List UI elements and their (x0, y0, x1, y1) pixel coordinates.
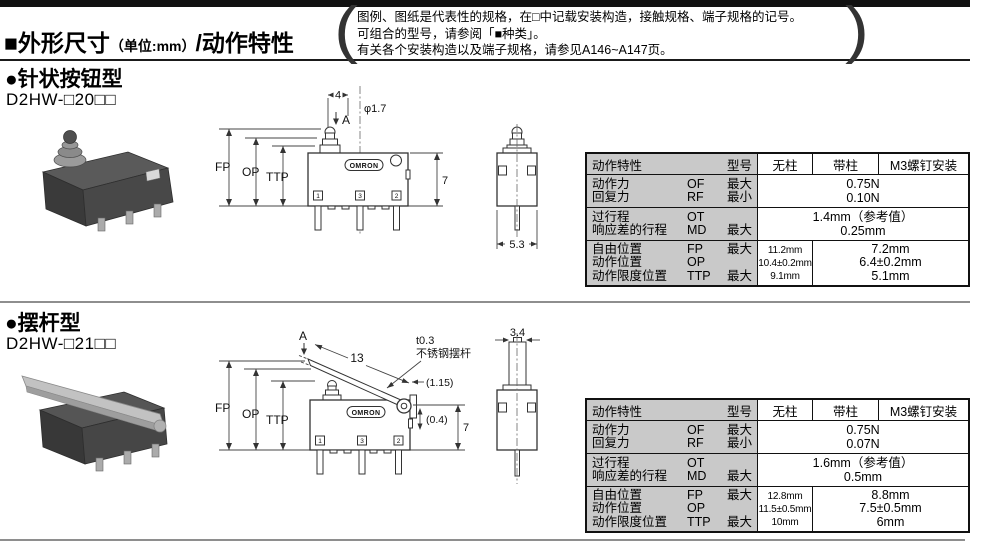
terminal-3-label: 3 (358, 193, 362, 200)
terminal-1-label: 1 (318, 438, 322, 445)
product-photo-hinge-lever (12, 344, 192, 474)
terminal-2-label: 2 (395, 193, 399, 200)
brand-logo-text: OMRON (352, 410, 381, 417)
column-header-m3-screw: M3螺钉安装 (878, 154, 968, 174)
section-divider (0, 301, 970, 303)
column-header-m3-screw: M3螺钉安装 (878, 400, 968, 420)
column-header-no-post: 无柱 (757, 400, 812, 420)
row-label-cell: 自由位置FP最大 动作位置OP 动作限度位置TTP最大 (587, 487, 757, 531)
ttp-label: TTP (266, 170, 289, 184)
terminal-1-label: 1 (316, 193, 320, 200)
table-row-force: 动作力OF最大 回复力RF最小 0.75N 0.07N (587, 420, 968, 453)
lever-length-dimension: 13 (315, 345, 409, 384)
corner-left-label: 动作特性 (592, 155, 642, 174)
page-title: ■外形尺寸（单位:mm）/动作特性 (4, 24, 294, 58)
table-corner-cell: 动作特性 型号 (587, 154, 757, 174)
corner-left-label: 动作特性 (592, 401, 642, 420)
table-row-positions: 自由位置FP最大 动作位置OP 动作限度位置TTP最大 11.2mm 10.4±… (587, 240, 968, 285)
page-title-main: ■外形尺寸 (4, 30, 110, 56)
lever-thickness-label: t0.3 (416, 335, 434, 347)
offset-dimension-2: (0.4) (418, 408, 448, 430)
note-line-2: 可组合的型号，请参阅「■种类」。 (357, 26, 849, 43)
dim-side-width-label: 3.4 (510, 328, 525, 339)
note-line-1: 图例、图纸是代表性的规格，在□中记载安装构造，接触规格、端子规格的记号。 (357, 9, 849, 26)
a-label: A (342, 113, 350, 127)
bottom-rule (0, 539, 965, 541)
row-values-cell: 1.6mm（参考值） 0.5mm (757, 454, 968, 486)
top-black-bar (0, 0, 970, 7)
row-values-cell: 0.75N 0.07N (757, 421, 968, 453)
ttp-label: TTP (266, 413, 289, 427)
a-label: A (299, 329, 307, 343)
dim-13-label: 13 (350, 351, 364, 365)
section-heading-pin-plunger: ●针状按钮型 (5, 63, 123, 93)
front-view-drawing: OMRON 1 3 2 (310, 381, 413, 475)
spec-table-hinge-lever: 动作特性 型号 无柱 带柱 M3螺钉安装 动作力OF最大 回复力RF最小 0.7… (585, 398, 970, 533)
lever-material-label: 不锈钢摆杆 (416, 346, 471, 360)
op-label: OP (242, 407, 259, 421)
spec-table-pin-plunger: 动作特性 型号 无柱 带柱 M3螺钉安装 动作力OF最大 回复力RF最小 0.7… (585, 152, 970, 287)
note-open-paren: ( (334, 0, 358, 61)
height-dimension: 7 (410, 153, 448, 206)
plunger-photo (54, 131, 86, 168)
row-values-post-m3: 8.8mm 7.5±0.5mm 6mm (812, 487, 968, 531)
fp-label: FP (215, 160, 230, 174)
dim-diameter-label: φ1.7 (364, 103, 386, 115)
row-label-cell: 动作力OF最大 回复力RF最小 (587, 175, 757, 207)
page-title-suffix: /动作特性 (195, 30, 293, 56)
table-row-travel: 过行程OT 响应差的行程MD最大 1.6mm（参考值） 0.5mm (587, 453, 968, 486)
row-values-cell: 0.75N 0.10N (757, 175, 968, 207)
table-row-force: 动作力OF最大 回复力RF最小 0.75N 0.10N (587, 174, 968, 207)
arrow-a-marker: A (333, 112, 350, 127)
front-view-drawing: OMRON 1 3 2 (308, 127, 410, 230)
table-row-travel: 过行程OT 响应差的行程MD最大 1.4mm（参考值） 0.25mm (587, 207, 968, 240)
section-heading-hinge-lever: ●摆杆型 (5, 307, 81, 337)
row-values-cell: 1.4mm（参考值） 0.25mm (757, 208, 968, 240)
page-title-unit: （单位:mm） (110, 38, 196, 54)
row-label-cell: 自由位置FP最大 动作位置OP 动作限度位置TTP最大 (587, 241, 757, 285)
title-underline (0, 59, 970, 61)
note-close-paren: ) (845, 0, 869, 61)
table-row-positions: 自由位置FP最大 动作位置OP 动作限度位置TTP最大 12.8mm 11.5±… (587, 486, 968, 531)
dim-0-4-label: (0.4) (426, 414, 448, 426)
dimension-drawing-pin-plunger: FP OP TTP OMRON 1 3 2 (215, 82, 565, 297)
row-values-no-post: 12.8mm 11.5±0.5mm 10mm (757, 487, 812, 531)
datasheet-page: ■外形尺寸（单位:mm）/动作特性 ( 图例、图纸是代表性的规格，在□中记载安装… (0, 0, 991, 548)
row-values-post-m3: 7.2mm 6.4±0.2mm 5.1mm (812, 241, 968, 285)
product-photo-pin-plunger (18, 110, 188, 232)
op-label: OP (242, 165, 259, 179)
corner-right-label: 型号 (727, 401, 752, 420)
arrow-a-marker: A (299, 329, 307, 355)
column-header-no-post: 无柱 (757, 154, 812, 174)
terminal-3-label: 3 (360, 438, 364, 445)
table-corner-cell: 动作特性 型号 (587, 400, 757, 420)
side-view-drawing: 3.4 (495, 328, 540, 484)
terminal-2-label: 2 (397, 438, 401, 445)
corner-right-label: 型号 (727, 155, 752, 174)
dim-7-label: 7 (463, 422, 469, 434)
row-values-no-post: 11.2mm 10.4±0.2mm 9.1mm (757, 241, 812, 285)
section-model-pin-plunger: D2HW-□20□□ (6, 90, 116, 110)
table-header-row: 动作特性 型号 无柱 带柱 M3螺钉安装 (587, 154, 968, 174)
dim-4-label: 4 (335, 90, 341, 102)
dim-7-label: 7 (442, 175, 448, 187)
header-note: 图例、图纸是代表性的规格，在□中记载安装构造，接触规格、端子规格的记号。 可组合… (357, 9, 849, 59)
offset-dimension-1: (1.15) (412, 377, 453, 389)
side-view-drawing: 5.3 (497, 124, 537, 251)
brand-logo-text: OMRON (350, 163, 379, 170)
column-header-post: 带柱 (812, 400, 878, 420)
row-label-cell: 过行程OT 响应差的行程MD最大 (587, 208, 757, 240)
dim-side-width-label: 5.3 (509, 239, 524, 251)
note-line-3: 有关各个安装构造以及端子规格，请参见A146~A147页。 (357, 42, 849, 59)
table-header-row: 动作特性 型号 无柱 带柱 M3螺钉安装 (587, 400, 968, 420)
row-label-cell: 动作力OF最大 回复力RF最小 (587, 421, 757, 453)
dimension-drawing-hinge-lever: FP OP TTP OMRON 1 3 2 (215, 328, 585, 540)
row-label-cell: 过行程OT 响应差的行程MD最大 (587, 454, 757, 486)
dim-1-15-label: (1.15) (426, 377, 453, 389)
column-header-post: 带柱 (812, 154, 878, 174)
fp-label: FP (215, 401, 230, 415)
